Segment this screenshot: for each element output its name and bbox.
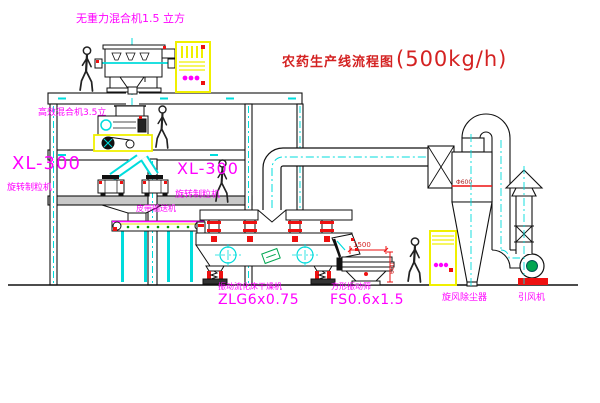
label-high-efficiency-mixer: 高效混合机3.5立 xyxy=(38,109,106,118)
cabinet-knob xyxy=(183,76,188,81)
fan-motor xyxy=(527,261,538,272)
label-gravity-mixer: 无重力混合机1.5 立方 xyxy=(76,13,185,24)
dim-600-text: 600 xyxy=(389,262,396,274)
person-figure-1 xyxy=(80,47,92,91)
belt-conveyor-machine xyxy=(112,221,205,282)
label-granulator-left-model: XL-300 xyxy=(12,155,81,173)
induced-draft-fan xyxy=(518,254,548,285)
label-granulator-right-name: 旋转制粒机 xyxy=(175,191,220,200)
label-dryer-name: 振动流化床干燥机 xyxy=(218,283,282,291)
floor-slab-1 xyxy=(48,93,302,104)
control-cabinet-top xyxy=(176,42,210,92)
granulator-left-machine xyxy=(98,180,124,196)
title-capacity: (500kg/h) xyxy=(396,47,507,71)
label-belt-conveyor: 皮带输送机 xyxy=(136,205,176,213)
label-screen-model: FS0.6x1.5 xyxy=(330,293,404,307)
label-granulator-left-name: 旋转制粒机 xyxy=(7,184,52,193)
label-cyclone: 旋风除尘器 xyxy=(442,294,487,303)
flex-connector xyxy=(428,146,454,188)
label-dryer-model: ZLG6x0.75 xyxy=(218,293,299,307)
title-text: 农药生产线流程图 xyxy=(282,51,394,70)
cabinet-knob xyxy=(434,263,438,267)
control-cabinet-right xyxy=(430,231,456,285)
diagram-title: 农药生产线流程图 (500kg/h) xyxy=(282,47,507,71)
dim-phi600-text: Φ600 xyxy=(456,179,472,186)
label-screen-name: 方形振动筛 xyxy=(331,283,371,291)
fluid-bed-dryer-machine xyxy=(196,210,360,284)
dim-1500-text: 1500 xyxy=(353,241,371,249)
label-granulator-right-model: XL-300 xyxy=(177,161,239,177)
person-figure-4 xyxy=(408,238,420,282)
label-fan: 引风机 xyxy=(518,294,545,303)
fan-base xyxy=(518,278,548,285)
flow-diagram-canvas: 1500 600 Φ600 xyxy=(0,0,600,403)
person-figure-2 xyxy=(156,106,168,148)
